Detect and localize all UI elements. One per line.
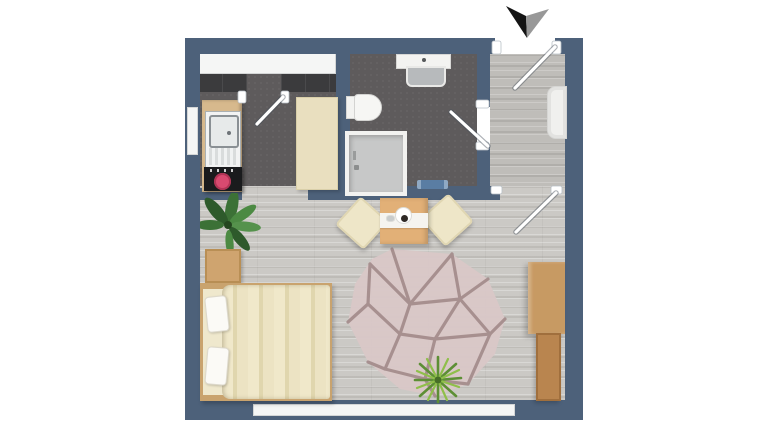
entry-door-jamb-left <box>492 41 501 54</box>
floor-plan <box>0 0 768 432</box>
kitchen-door-leaf <box>257 97 283 124</box>
doors-and-compass-overlay <box>0 0 768 432</box>
bathroom-door-jamb-top <box>476 100 489 108</box>
hall-door-leaf <box>516 193 556 232</box>
kitchen-door-jamb-left <box>238 91 246 103</box>
bathroom-door-leaf <box>451 112 488 146</box>
entry-door-leaf <box>515 47 555 88</box>
hall-door-jamb-left <box>491 186 502 194</box>
north-arrow-icon <box>506 6 549 38</box>
